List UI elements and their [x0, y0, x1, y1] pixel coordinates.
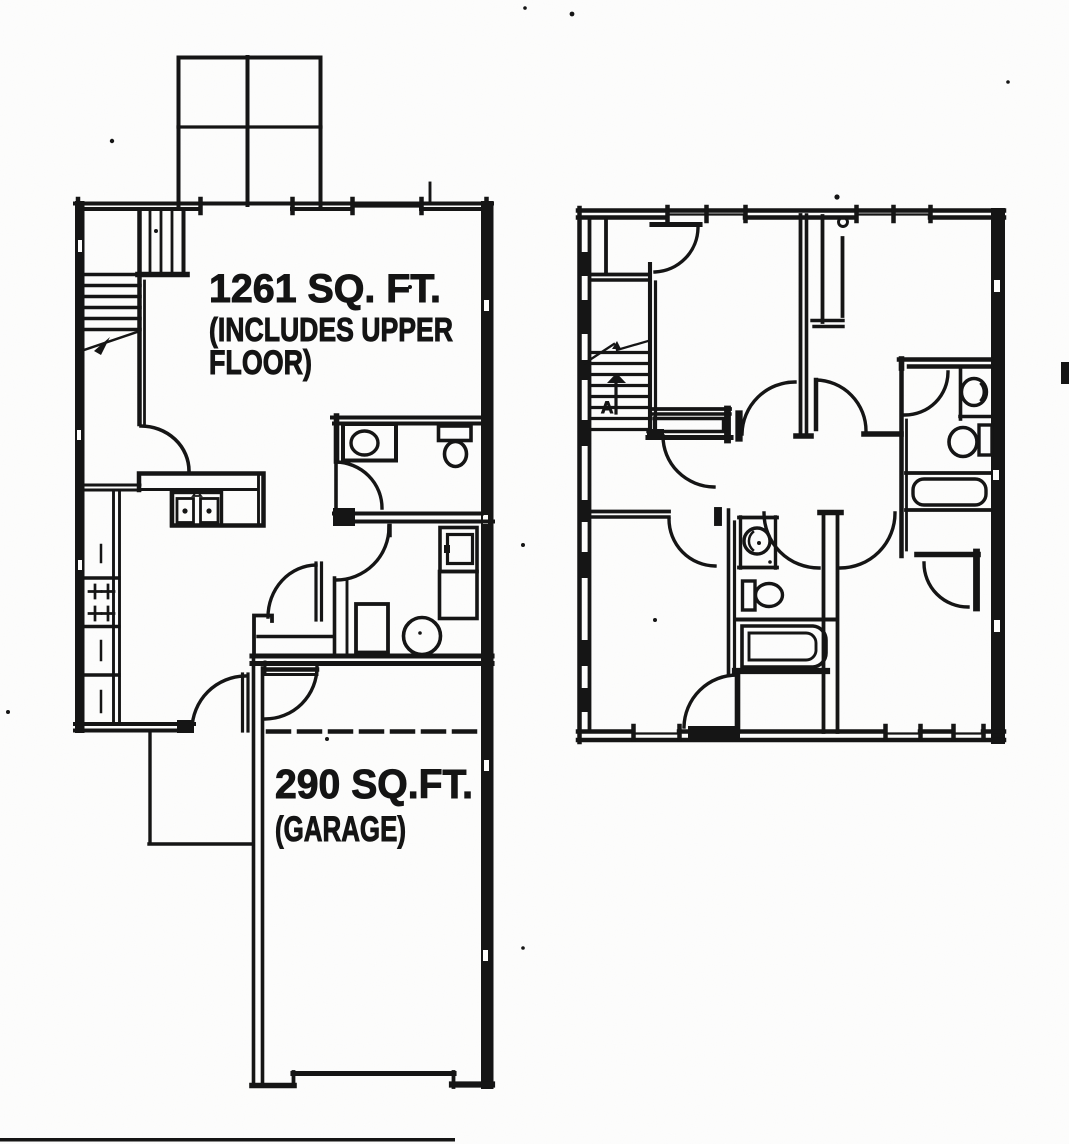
svg-text:(INCLUDES UPPER: (INCLUDES UPPER	[209, 311, 453, 348]
svg-text:A: A	[601, 398, 613, 417]
svg-text:FLOOR): FLOOR)	[209, 344, 312, 382]
svg-text:290 SQ.FT.: 290 SQ.FT.	[275, 761, 473, 807]
svg-text:(GARAGE): (GARAGE)	[275, 810, 406, 849]
svg-text:1261 SQ. FT.: 1261 SQ. FT.	[209, 267, 441, 311]
